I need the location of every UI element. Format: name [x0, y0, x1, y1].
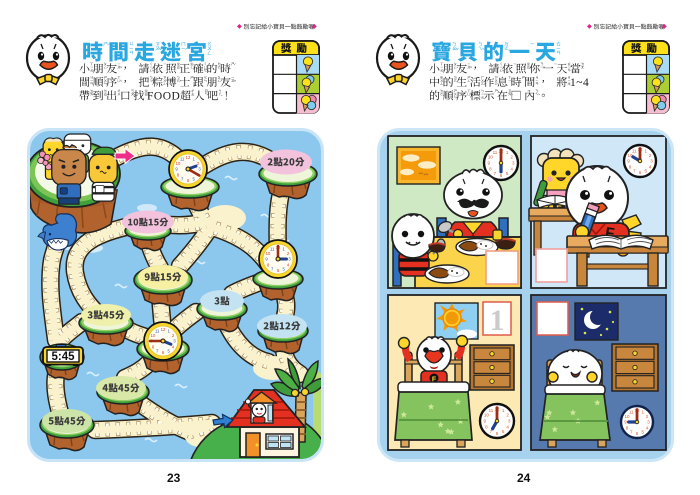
svg-text:1~4: 1~4: [570, 77, 589, 89]
svg-text:FOOD: FOOD: [147, 91, 180, 103]
